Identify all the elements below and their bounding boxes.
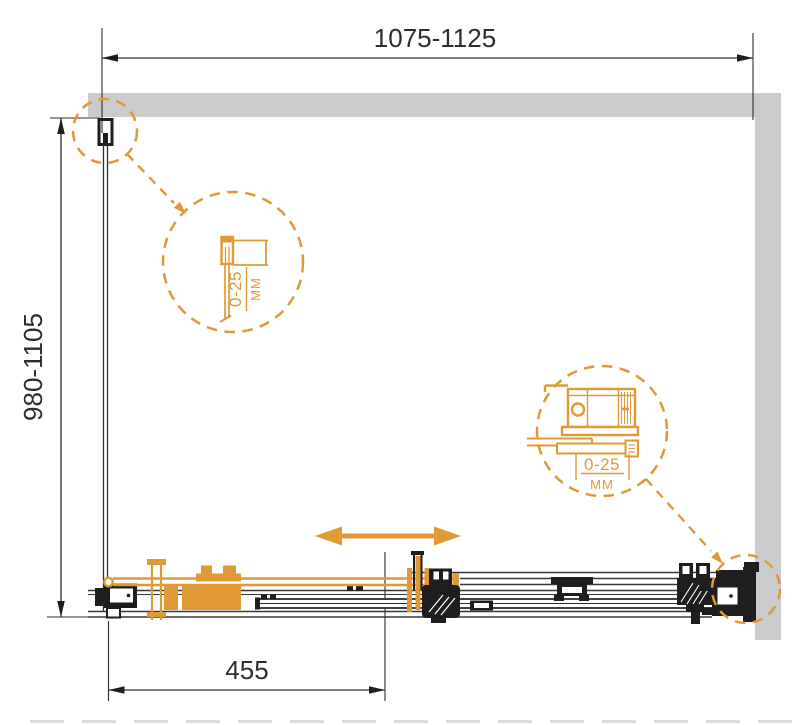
orange-highlight-parts	[104, 556, 459, 620]
roller-carriage-highlight	[182, 586, 241, 610]
leader-arrow-icon	[174, 202, 186, 214]
wall-top	[88, 93, 780, 117]
dim-value-left: 980-1105	[18, 313, 48, 421]
dim-arrow-right-icon	[737, 54, 753, 62]
dimension-left-height: 980-1105	[18, 118, 100, 617]
detail-range-label: 0-25	[226, 271, 245, 307]
leader-arrow-icon	[711, 551, 723, 564]
detail-wall-profile-drawing: 0-25 MM	[220, 237, 268, 322]
callout-circles	[73, 99, 780, 623]
dim-arrow-left-icon	[109, 686, 125, 694]
slide-direction-arrow-icon	[315, 527, 461, 546]
glass-panel-left	[99, 120, 112, 613]
detail-unit-label: MM	[248, 277, 263, 301]
dim-arrow-left-icon	[102, 54, 118, 62]
dim-arrow-up-icon	[57, 118, 65, 134]
dimension-bottom-door: 455	[109, 552, 386, 701]
technical-drawing-page: 1075-1125 980-1105 455	[0, 0, 800, 725]
roller-bracket	[429, 569, 452, 586]
roller-body	[677, 578, 715, 605]
detail-unit-label: MM	[590, 477, 614, 492]
detail-leader-line	[127, 154, 174, 203]
wall-right	[755, 93, 781, 640]
bracket-notch	[103, 133, 108, 144]
walls	[88, 93, 781, 640]
dim-value-top: 1075-1125	[374, 23, 496, 53]
wall-tab	[95, 588, 104, 606]
rail-end-cap	[104, 578, 112, 586]
screw-icon	[572, 404, 584, 416]
profile-foot	[107, 608, 120, 618]
dim-value-bottom: 455	[225, 655, 268, 685]
detail-leader-line	[646, 479, 711, 551]
door-end-cap	[255, 598, 260, 610]
guide-block-assembly	[551, 577, 593, 601]
roller-body	[422, 585, 460, 618]
dim-arrow-down-icon	[57, 601, 65, 617]
shower-enclosure-plan-drawing: 1075-1125 980-1105 455	[0, 0, 800, 725]
dim-arrow-right-icon	[369, 686, 385, 694]
detail-range-label: 0-25	[584, 455, 620, 474]
left-wall-profile-assembly	[95, 584, 137, 618]
wall-profile-bar	[743, 567, 756, 622]
